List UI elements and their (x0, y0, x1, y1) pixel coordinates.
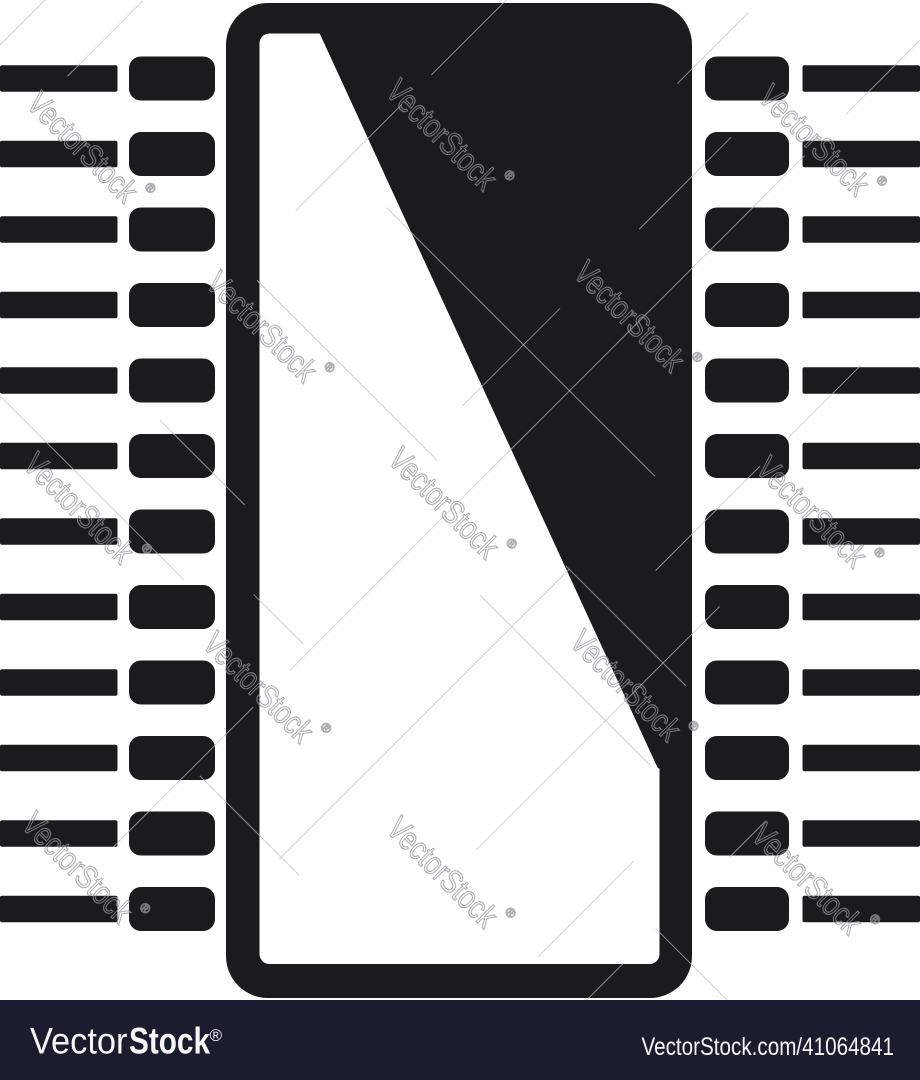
svg-text:®: ® (210, 1026, 223, 1045)
svg-text:Vector: Vector (30, 1021, 128, 1062)
svg-text:Stock: Stock (129, 1021, 210, 1062)
svg-text:VectorStock.com/41064841: VectorStock.com/41064841 (642, 1033, 895, 1061)
